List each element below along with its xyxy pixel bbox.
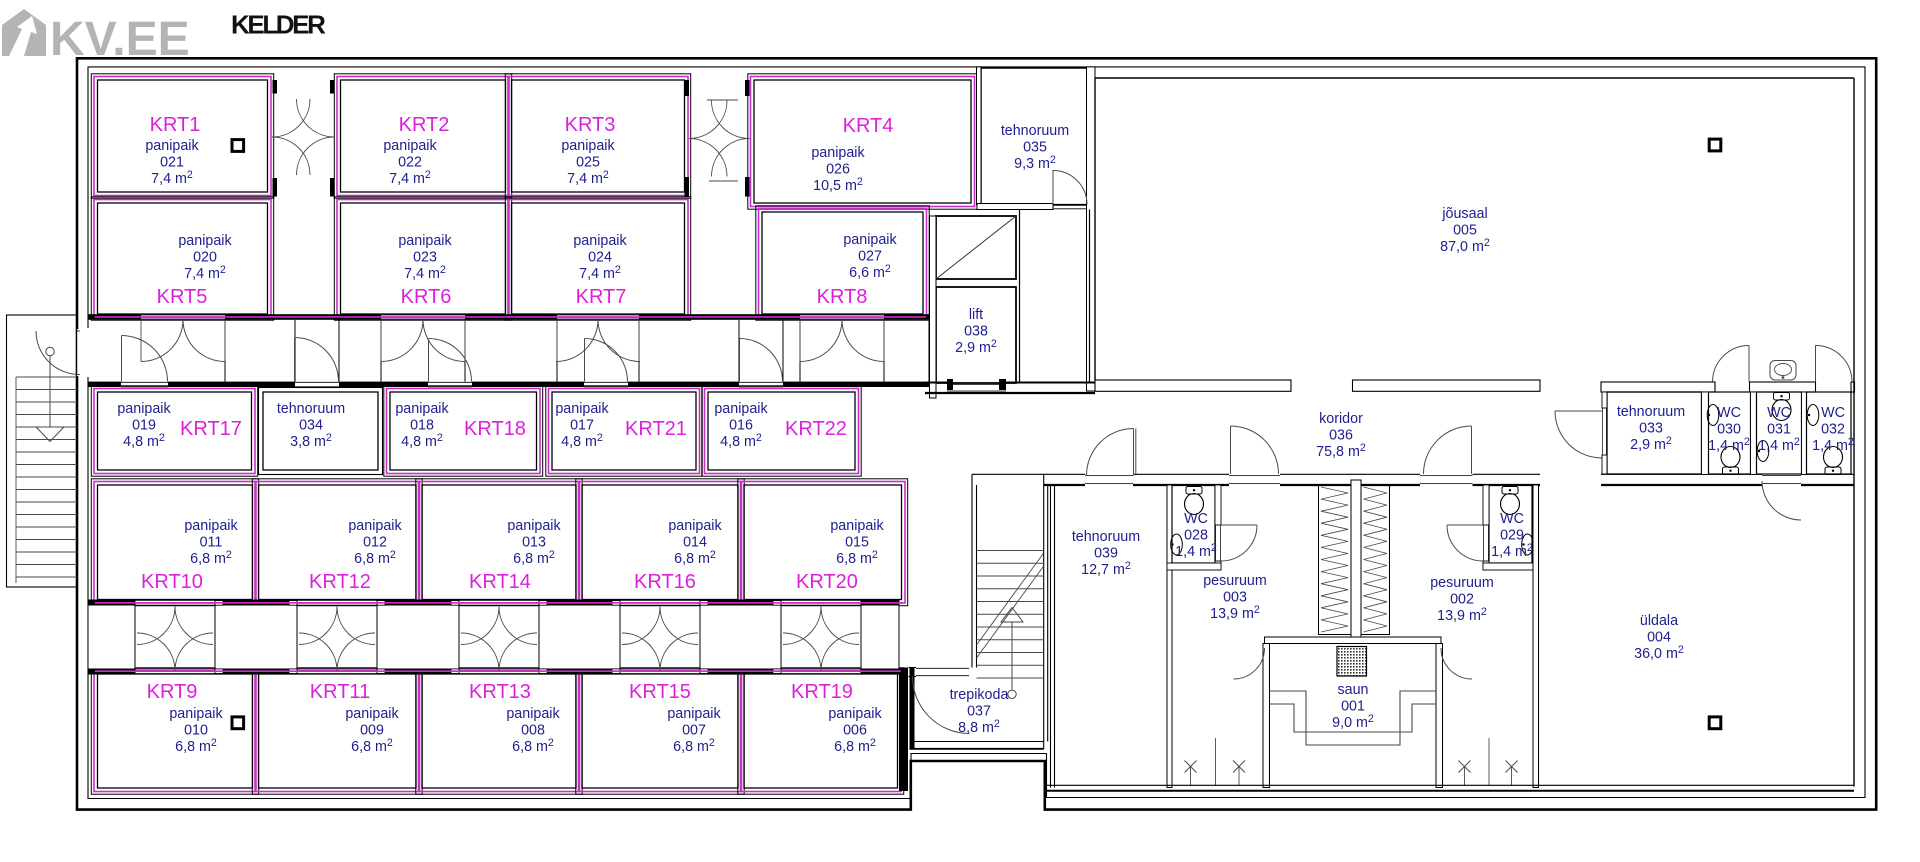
svg-text:pesuruum: pesuruum — [1430, 575, 1494, 591]
svg-text:tehnoruum: tehnoruum — [1072, 529, 1140, 545]
svg-text:WC: WC — [1821, 405, 1845, 421]
svg-text:6,8 m2: 6,8 m2 — [834, 737, 876, 755]
svg-text:4,8 m2: 4,8 m2 — [123, 432, 165, 450]
svg-text:saun: saun — [1337, 682, 1368, 698]
svg-text:panipaik: panipaik — [668, 518, 722, 534]
svg-text:6,8 m2: 6,8 m2 — [175, 737, 217, 755]
svg-text:6,8 m2: 6,8 m2 — [190, 549, 232, 567]
svg-text:039: 039 — [1094, 546, 1118, 562]
svg-text:1,4 m2: 1,4 m2 — [1812, 436, 1854, 454]
svg-text:KRT10: KRT10 — [141, 571, 203, 593]
svg-text:panipaik: panipaik — [145, 138, 199, 154]
svg-text:6,8 m2: 6,8 m2 — [513, 549, 555, 567]
svg-text:1,4 m2: 1,4 m2 — [1708, 436, 1750, 454]
svg-text:panipaik: panipaik — [714, 401, 768, 417]
svg-text:KRT4: KRT4 — [843, 115, 894, 137]
svg-text:035: 035 — [1023, 140, 1047, 156]
svg-text:8,8 m2: 8,8 m2 — [958, 718, 1000, 736]
svg-text:3,8 m2: 3,8 m2 — [290, 432, 332, 450]
svg-text:006: 006 — [843, 723, 867, 739]
svg-text:panipaik: panipaik — [398, 233, 452, 249]
svg-text:9,0 m2: 9,0 m2 — [1332, 713, 1374, 731]
svg-text:019: 019 — [132, 418, 156, 434]
svg-text:panipaik: panipaik — [117, 401, 171, 417]
svg-text:WC: WC — [1500, 511, 1524, 527]
svg-text:7,4 m2: 7,4 m2 — [579, 264, 621, 282]
svg-text:WC: WC — [1767, 405, 1791, 421]
svg-text:7,4 m2: 7,4 m2 — [567, 169, 609, 187]
svg-text:KRT16: KRT16 — [634, 571, 696, 593]
svg-text:6,8 m2: 6,8 m2 — [674, 549, 716, 567]
svg-text:panipaik: panipaik — [561, 138, 615, 154]
svg-text:6,6 m2: 6,6 m2 — [849, 263, 891, 281]
svg-text:4,8 m2: 4,8 m2 — [561, 432, 603, 450]
svg-text:panipaik: panipaik — [383, 138, 437, 154]
svg-text:KRT1: KRT1 — [150, 114, 201, 136]
svg-text:036: 036 — [1329, 428, 1353, 444]
svg-text:12,7 m2: 12,7 m2 — [1081, 560, 1131, 578]
svg-text:75,8 m2: 75,8 m2 — [1316, 442, 1366, 460]
svg-text:panipaik: panipaik — [555, 401, 609, 417]
svg-text:KRT20: KRT20 — [796, 571, 858, 593]
svg-text:021: 021 — [160, 155, 184, 171]
svg-text:13,9 m2: 13,9 m2 — [1437, 606, 1487, 624]
svg-text:jõusaal: jõusaal — [1441, 206, 1487, 222]
svg-text:6,8 m2: 6,8 m2 — [354, 549, 396, 567]
svg-text:029: 029 — [1500, 528, 1524, 544]
svg-text:panipaik: panipaik — [830, 518, 884, 534]
svg-text:024: 024 — [588, 250, 612, 266]
svg-text:87,0 m2: 87,0 m2 — [1440, 237, 1490, 255]
svg-text:027: 027 — [858, 249, 882, 265]
svg-text:7,4 m2: 7,4 m2 — [389, 169, 431, 187]
svg-text:2,9 m2: 2,9 m2 — [1630, 435, 1672, 453]
svg-text:038: 038 — [964, 324, 988, 340]
svg-text:36,0 m2: 36,0 m2 — [1634, 644, 1684, 662]
svg-text:028: 028 — [1184, 528, 1208, 544]
svg-text:panipaik: panipaik — [348, 518, 402, 534]
svg-text:011: 011 — [200, 535, 223, 551]
svg-text:lift: lift — [969, 307, 983, 323]
svg-text:trepikoda: trepikoda — [950, 687, 1009, 703]
svg-text:023: 023 — [413, 250, 437, 266]
svg-text:KRT8: KRT8 — [817, 286, 868, 308]
svg-text:020: 020 — [193, 250, 217, 266]
svg-text:panipaik: panipaik — [828, 706, 882, 722]
svg-text:panipaik: panipaik — [395, 401, 449, 417]
svg-text:030: 030 — [1717, 422, 1741, 438]
svg-text:037: 037 — [967, 704, 991, 720]
svg-text:022: 022 — [398, 155, 422, 171]
svg-text:7,4 m2: 7,4 m2 — [404, 264, 446, 282]
svg-text:032: 032 — [1821, 422, 1845, 438]
svg-text:pesuruum: pesuruum — [1203, 573, 1267, 589]
svg-text:panipaik: panipaik — [667, 706, 721, 722]
svg-text:6,8 m2: 6,8 m2 — [836, 549, 878, 567]
svg-text:005: 005 — [1453, 223, 1477, 239]
svg-text:015: 015 — [845, 535, 869, 551]
svg-text:017: 017 — [570, 418, 594, 434]
svg-text:panipaik: panipaik — [573, 233, 627, 249]
svg-text:003: 003 — [1223, 590, 1247, 606]
svg-text:008: 008 — [521, 723, 545, 739]
svg-text:7,4 m2: 7,4 m2 — [184, 264, 226, 282]
svg-text:026: 026 — [826, 162, 850, 178]
svg-text:panipaik: panipaik — [169, 706, 223, 722]
svg-text:KRT18: KRT18 — [464, 418, 526, 440]
svg-text:KRT7: KRT7 — [576, 286, 627, 308]
svg-text:002: 002 — [1450, 592, 1474, 608]
svg-text:KRT9: KRT9 — [147, 681, 198, 703]
svg-text:panipaik: panipaik — [843, 232, 897, 248]
svg-text:KRT17: KRT17 — [180, 418, 242, 440]
svg-text:KRT6: KRT6 — [401, 286, 452, 308]
svg-text:014: 014 — [683, 535, 707, 551]
svg-text:009: 009 — [360, 723, 384, 739]
svg-text:panipaik: panipaik — [811, 145, 865, 161]
svg-text:034: 034 — [299, 418, 323, 434]
svg-text:013: 013 — [522, 535, 546, 551]
svg-text:panipaik: panipaik — [345, 706, 399, 722]
svg-text:KRT2: KRT2 — [399, 114, 450, 136]
svg-text:13,9 m2: 13,9 m2 — [1210, 604, 1260, 622]
svg-text:4,8 m2: 4,8 m2 — [401, 432, 443, 450]
svg-text:tehnoruum: tehnoruum — [277, 401, 345, 417]
svg-text:KRT13: KRT13 — [469, 681, 531, 703]
svg-text:KELDER: KELDER — [231, 10, 326, 40]
svg-text:KRT3: KRT3 — [565, 114, 616, 136]
svg-text:WC: WC — [1184, 511, 1208, 527]
svg-text:016: 016 — [729, 418, 753, 434]
svg-text:2,9 m2: 2,9 m2 — [955, 338, 997, 356]
svg-text:üldala: üldala — [1640, 613, 1678, 629]
svg-text:tehnoruum: tehnoruum — [1617, 404, 1685, 420]
svg-text:KRT22: KRT22 — [785, 418, 847, 440]
svg-text:012: 012 — [363, 535, 387, 551]
svg-text:6,8 m2: 6,8 m2 — [512, 737, 554, 755]
svg-text:6,8 m2: 6,8 m2 — [673, 737, 715, 755]
svg-text:panipaik: panipaik — [178, 233, 232, 249]
svg-text:025: 025 — [576, 155, 600, 171]
svg-text:tehnoruum: tehnoruum — [1001, 123, 1069, 139]
svg-text:KRT15: KRT15 — [629, 681, 691, 703]
svg-text:KRT5: KRT5 — [157, 286, 208, 308]
svg-text:WC: WC — [1717, 405, 1741, 421]
svg-text:007: 007 — [682, 723, 706, 739]
svg-text:7,4 m2: 7,4 m2 — [151, 169, 193, 187]
svg-text:001: 001 — [1341, 699, 1365, 715]
svg-text:KRT11: KRT11 — [310, 681, 370, 703]
svg-text:6,8 m2: 6,8 m2 — [351, 737, 393, 755]
svg-text:033: 033 — [1639, 421, 1663, 437]
svg-text:KRT19: KRT19 — [791, 681, 853, 703]
svg-text:010: 010 — [184, 723, 208, 739]
svg-text:031: 031 — [1767, 422, 1791, 438]
svg-text:004: 004 — [1647, 630, 1671, 646]
svg-text:panipaik: panipaik — [507, 518, 561, 534]
svg-text:KRT14: KRT14 — [469, 571, 531, 593]
svg-text:9,3 m2: 9,3 m2 — [1014, 154, 1056, 172]
svg-text:1,4 m2: 1,4 m2 — [1758, 436, 1800, 454]
svg-text:panipaik: panipaik — [184, 518, 238, 534]
svg-text:KRT21: KRT21 — [625, 418, 687, 440]
svg-text:KRT12: KRT12 — [309, 571, 371, 593]
svg-text:koridor: koridor — [1319, 411, 1363, 427]
svg-text:018: 018 — [410, 418, 434, 434]
svg-text:4,8 m2: 4,8 m2 — [720, 432, 762, 450]
svg-text:1,4 m2: 1,4 m2 — [1491, 542, 1533, 560]
svg-text:panipaik: panipaik — [506, 706, 560, 722]
svg-text:1,4 m2: 1,4 m2 — [1175, 542, 1217, 560]
svg-text:10,5 m2: 10,5 m2 — [813, 176, 863, 194]
